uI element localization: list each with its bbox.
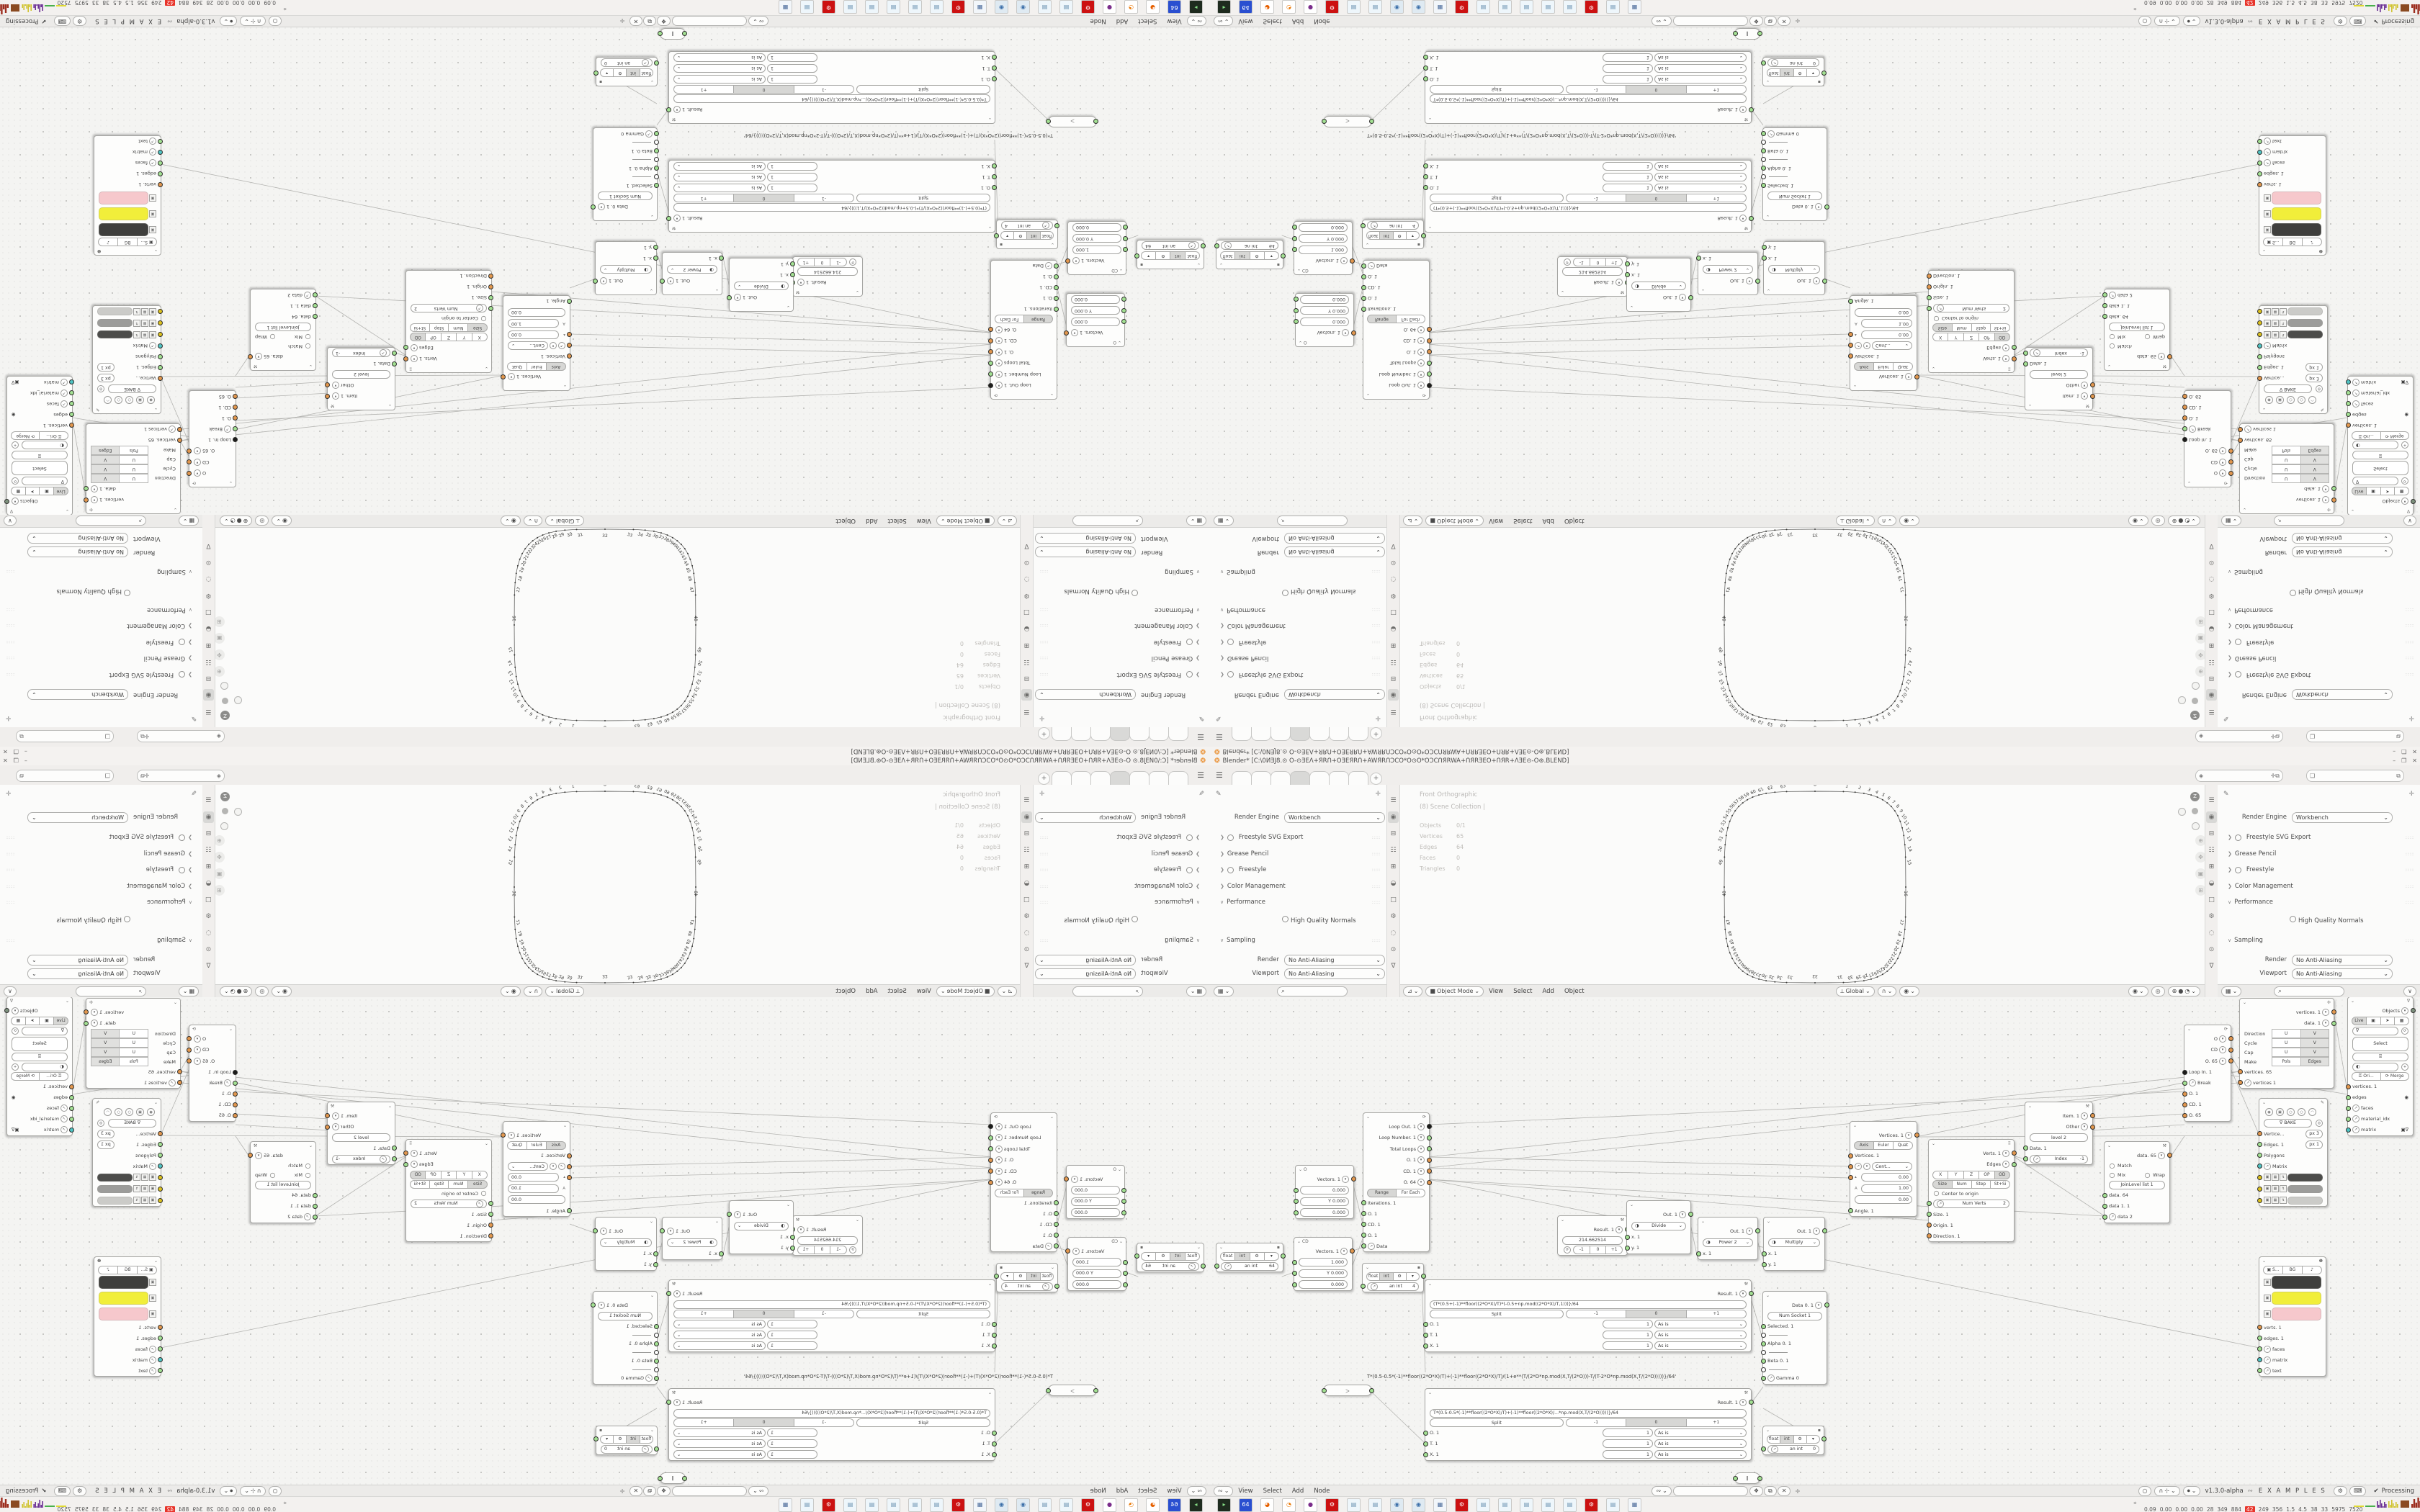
node-socket[interactable]: [84, 1021, 89, 1026]
segment-float[interactable]: float: [1185, 1252, 1200, 1261]
menu-select[interactable]: Select: [888, 988, 907, 995]
display-toggle-icon[interactable]: ○: [125, 396, 133, 404]
node-socket[interactable]: [2257, 182, 2262, 187]
pin-icon[interactable]: ✛: [1039, 714, 1045, 721]
prop-dropdown[interactable]: No Anti-Aliasing⌄: [1035, 968, 1136, 979]
segment-range[interactable]: Range: [1367, 1189, 1397, 1197]
checkbox[interactable]: [1227, 834, 1234, 841]
socket-menu-icon[interactable]: ▾: [1679, 1211, 1686, 1218]
disclosure-triangle[interactable]: ❯: [1196, 851, 1200, 857]
center-mode-dropdown[interactable]: Cent...⌄: [1872, 1162, 1912, 1171]
input-value-field[interactable]: ↗an int0: [1767, 1445, 1819, 1454]
collapse-icon[interactable]: ⌄: [154, 407, 158, 412]
node-socket[interactable]: [2257, 139, 2262, 144]
node-header[interactable]: ⌄ CD: [1294, 1238, 1352, 1246]
input-value-field[interactable]: ↗an int0: [601, 59, 653, 68]
color-option-icon[interactable]: ▣: [2264, 1185, 2271, 1192]
number-field[interactable]: 0.000: [1071, 295, 1120, 304]
update-all-button[interactable]: ⚙: [73, 16, 86, 26]
node-number-4[interactable]: ⌄▪floatint⚙▾↗an int4: [1362, 220, 1424, 249]
transform-mode-dropdown[interactable]: As is⌄: [673, 162, 766, 171]
record-icon[interactable]: ◎: [2316, 1120, 2323, 1127]
cell-v[interactable]: V: [91, 464, 120, 474]
wrap-+1[interactable]: +1: [673, 1310, 733, 1318]
socket-menu-icon[interactable]: ▾: [995, 1156, 1003, 1164]
display-toggle-icon[interactable]: ○: [2287, 1108, 2295, 1116]
collapse-icon[interactable]: ⌄ CD: [1111, 268, 1123, 273]
checkbox[interactable]: [2235, 867, 2241, 873]
new-workspace-tab-button[interactable]: +: [1038, 773, 1050, 785]
step-+1[interactable]: +1: [797, 1246, 814, 1254]
color-option-icon[interactable]: ▣: [2264, 194, 2271, 202]
node-field[interactable]: ◐: [22, 441, 68, 450]
socket-menu-icon[interactable]: ▾: [1739, 215, 1747, 222]
wifi-arrow-icon[interactable]: ↗: [380, 350, 387, 357]
segment-od[interactable]: OD: [410, 333, 425, 342]
disclosure-triangle[interactable]: ∨: [1220, 899, 1224, 905]
collapse-icon[interactable]: ⌄: [650, 1293, 654, 1298]
node-header[interactable]: ⌄: [503, 382, 570, 390]
socket-menu-icon[interactable]: ▾: [2219, 1035, 2226, 1043]
menu-view[interactable]: View: [1489, 518, 1503, 525]
prop-dropdown[interactable]: No Anti-Aliasing⌄: [1035, 534, 1136, 544]
node-socket[interactable]: [187, 471, 192, 476]
panel-label[interactable]: Freestyle: [2246, 866, 2274, 873]
workspace-tab[interactable]: [1348, 771, 1368, 786]
split-button[interactable]: Split: [856, 1310, 990, 1318]
node-field[interactable]: 214.662514: [1562, 1236, 1623, 1245]
socket-menu-icon[interactable]: ▾: [600, 1228, 607, 1235]
segment-quat[interactable]: Quat: [1894, 362, 1913, 371]
number-field[interactable]: 0.000: [1071, 1208, 1120, 1217]
tree-select-button[interactable]: ∾⌄: [748, 16, 768, 26]
collapse-button[interactable]: ∨: [4, 516, 17, 526]
collapse-icon[interactable]: ⌄: [856, 289, 859, 294]
node-socket[interactable]: [2257, 1187, 2262, 1192]
segment-float[interactable]: float: [1220, 1252, 1235, 1261]
node-socket[interactable]: [2090, 1113, 2095, 1118]
cell-pols[interactable]: Pols: [120, 1057, 149, 1066]
search-input[interactable]: ⌕: [1072, 986, 1143, 996]
overlay-group[interactable]: ⏺⌄: [2183, 16, 2201, 26]
node-header[interactable]: ⌄⚒: [251, 362, 315, 370]
viewport-3d[interactable]: Front Orthographic (8) Scene Collection …: [1399, 515, 2205, 727]
workspace-tab[interactable]: [1232, 771, 1252, 786]
collapse-icon[interactable]: ⌄: [66, 508, 69, 513]
disclosure-triangle[interactable]: ∨: [2228, 937, 2231, 943]
display-toggle-icon[interactable]: ◠: [104, 1108, 112, 1116]
menu-select[interactable]: Select: [1138, 17, 1157, 24]
segment-foreach[interactable]: For Each: [995, 1189, 1023, 1197]
color-option-icon[interactable]: ▣: [2264, 1197, 2271, 1204]
wifi-arrow-icon[interactable]: ↗: [1368, 1243, 1375, 1250]
node-socket[interactable]: [2346, 1128, 2351, 1133]
wifi-arrow-icon[interactable]: ↗: [2264, 343, 2271, 350]
row-right-icon[interactable]: ◉: [2404, 1094, 2408, 1100]
node-header[interactable]: ⌄⚒: [793, 288, 862, 296]
node-loop-out[interactable]: ⌄⟳O▾CD▾O. 65▾Loop In. 1↗BreakO. 1CD. 1O.…: [189, 1025, 236, 1122]
node-header[interactable]: ⌄▪: [1137, 261, 1204, 269]
menu-add[interactable]: Add: [1292, 1488, 1304, 1495]
viewport-tool-0[interactable]: ⊕: [214, 666, 225, 677]
node-socket[interactable]: [1361, 1200, 1366, 1205]
segment-live[interactable]: Live: [2352, 1017, 2367, 1025]
node-socket[interactable]: [1294, 297, 1299, 302]
disclosure-triangle[interactable]: ❯: [2228, 623, 2232, 629]
properties-tab-7[interactable]: ⚙: [1021, 590, 1032, 601]
gizmo-minus-z[interactable]: [2192, 822, 2200, 830]
segment-[interactable]: ▾: [1407, 1272, 1420, 1281]
number-field[interactable]: Y 0.000: [1071, 306, 1120, 315]
properties-tab-3[interactable]: ☷: [2206, 845, 2217, 856]
checkbox-row[interactable]: Wrap: [255, 1172, 276, 1179]
node-viewer-draw[interactable]: ⌄✎◉▣○○◠∇ BAKE◎Vertice...px 3Edges. 1px 1…: [2259, 305, 2328, 414]
socket-menu-icon[interactable]: ▾: [1340, 257, 1348, 264]
taskbar-app-icon-2[interactable]: ◕: [1146, 0, 1160, 14]
panel-label[interactable]: Grease Pencil: [2235, 850, 2277, 858]
wifi-arrow-icon[interactable]: ↗: [2264, 160, 2271, 167]
segment-[interactable]: ⚙: [1794, 69, 1807, 78]
number-field[interactable]: 0.00: [1855, 1195, 1912, 1204]
wifi-arrow-icon[interactable]: ↗: [2352, 1104, 2359, 1112]
number-field[interactable]: Y 0.000: [1072, 234, 1121, 243]
node-number-4[interactable]: ⌄▪floatint⚙▾↗an int4: [1362, 1263, 1424, 1292]
editor-type-button[interactable]: ∾⌄: [1187, 16, 1206, 26]
node-formula-1[interactable]: ⌄⚒Result. 1▾(T*(0.5+(-1)**floor((2*O*X)/…: [1425, 1279, 1752, 1352]
segment-euler[interactable]: Euler: [526, 1141, 546, 1150]
node-socket[interactable]: [1135, 253, 1140, 258]
menu-select[interactable]: Select: [1513, 518, 1532, 525]
properties-tab-10[interactable]: ∇: [2206, 540, 2217, 552]
prop-dropdown[interactable]: No Anti-Aliasing⌄: [1035, 955, 1136, 966]
segment-[interactable]: ▾: [1265, 1252, 1279, 1261]
operation-dropdown[interactable]: ◑Divide⌄: [1631, 1222, 1686, 1230]
segment-float[interactable]: float: [1767, 1435, 1780, 1444]
close-button[interactable]: ✕: [3, 748, 8, 755]
node-field[interactable]: JoinLevel list 1: [255, 1181, 311, 1189]
node-socket[interactable]: [1821, 71, 1827, 76]
sverchok-node-editor[interactable]: ⌄▪floatint⚙▾↗an int64⌄ OVectors. 1▾0.000…: [1210, 997, 2420, 1485]
depth-value[interactable]: 1: [1603, 1450, 1653, 1459]
taskbar-app-icon-10[interactable]: ▦: [1433, 0, 1447, 14]
scene-selector[interactable]: ◈✛⧉: [137, 770, 225, 782]
socket-menu-icon[interactable]: ▾: [2219, 1046, 2226, 1053]
collapse-icon[interactable]: ⌄: [309, 364, 313, 369]
collapse-icon[interactable]: ⌄: [1428, 1282, 1432, 1287]
workspace-tab[interactable]: [1090, 726, 1111, 741]
segment-z[interactable]: Z: [441, 333, 456, 342]
color-option-icon[interactable]: ▣: [149, 1279, 156, 1286]
checkbox[interactable]: [1186, 867, 1193, 873]
properties-tab-3[interactable]: ☷: [2206, 656, 2217, 667]
socket-menu-icon[interactable]: ▾: [2401, 498, 2408, 505]
wifi-arrow-icon[interactable]: ↗: [60, 1104, 68, 1112]
segment-float[interactable]: float: [1040, 232, 1054, 240]
overlays-toggle[interactable]: ◉⌄: [272, 516, 292, 526]
segment-y[interactable]: Y: [1948, 1171, 1963, 1179]
wifi-arrow-icon[interactable]: ↗: [642, 60, 649, 67]
wifi-arrow-icon[interactable]: ↗: [2189, 1079, 2196, 1086]
collapse-icon[interactable]: ⌄: [485, 1141, 488, 1146]
taskbar-app-icon-13[interactable]: ▤: [1498, 0, 1512, 14]
prop-dropdown[interactable]: Workbench⌄: [1035, 812, 1136, 823]
show-panel-button[interactable]: ⌨: [2349, 1486, 2367, 1496]
panel-label[interactable]: Performance: [147, 899, 186, 906]
node-math-divide[interactable]: ⌄Out. 1▾◑Divide⌄x. 1y. 1: [1626, 258, 1691, 312]
node-socket[interactable]: [326, 394, 331, 399]
gizmo-z-axis[interactable]: Z: [220, 792, 230, 801]
segment-[interactable]: ⚙: [1250, 252, 1265, 261]
node-socket[interactable]: [1696, 1251, 1701, 1256]
node-socket[interactable]: [1427, 338, 1432, 343]
properties-tab-4[interactable]: ⊞: [1388, 861, 1399, 873]
segment-[interactable]: ▦: [2395, 1017, 2409, 1025]
scene-selector[interactable]: ◈✛⧉: [137, 730, 225, 742]
workspace-tab[interactable]: [1168, 726, 1188, 741]
wifi-arrow-icon[interactable]: ↗: [1371, 222, 1378, 230]
update-all-button[interactable]: ⚙: [2334, 16, 2347, 26]
node-uv-connection[interactable]: ⌄✢vertices. 1▾data. 1▾DirectionUVCycleUV…: [2239, 423, 2334, 514]
collapse-icon[interactable]: ⌄: [1767, 288, 1770, 293]
collapse-icon[interactable]: ⌄: [563, 384, 567, 389]
node-field[interactable]: ∇: [22, 1027, 68, 1035]
node-socket[interactable]: [1214, 243, 1219, 248]
panel-label[interactable]: Freestyle SVG Export: [2246, 671, 2311, 678]
color-swatch[interactable]: [99, 1292, 148, 1305]
display-toggle-icon[interactable]: ▣: [2276, 396, 2284, 404]
select-button[interactable]: Select: [2352, 1037, 2408, 1051]
menu-node[interactable]: Node: [1090, 1488, 1106, 1495]
node-formula-2[interactable]: ⌄⚒Result. 1▾T*(0.5-0.5*(-1)**floor((2*O*…: [1425, 52, 1752, 125]
node-socket[interactable]: [1822, 279, 1827, 284]
socket-menu-icon[interactable]: ▾: [1417, 359, 1425, 366]
socket-menu-icon[interactable]: ▾: [1739, 106, 1747, 113]
disclosure-triangle[interactable]: ❯: [2228, 672, 2232, 678]
segment-s[interactable]: ▣ S...: [2263, 1266, 2283, 1274]
taskbar-app-icon-12[interactable]: ▤: [930, 0, 944, 14]
snap-group[interactable]: ∩⊹⌄: [240, 1486, 265, 1496]
row-right-icon[interactable]: ◉: [2404, 412, 2408, 418]
properties-tab-9[interactable]: ⊙: [1388, 557, 1399, 568]
hamburger-menu-icon[interactable]: ☰: [1197, 770, 1204, 780]
collapse-icon[interactable]: ⌄: [154, 248, 158, 253]
node-socket[interactable]: [1749, 216, 1754, 221]
collapse-icon[interactable]: ⌄: [2262, 248, 2266, 253]
segment-[interactable]: ▾: [1265, 252, 1279, 261]
wifi-arrow-icon[interactable]: ↗: [1042, 222, 1049, 230]
search-input[interactable]: ⌕: [2274, 986, 2344, 996]
socket-menu-icon[interactable]: ▾: [1072, 1248, 1080, 1255]
close-button[interactable]: ✕: [2412, 748, 2417, 755]
collapse-icon[interactable]: ⌄: [1766, 1293, 1770, 1298]
depth-value[interactable]: 1: [767, 162, 817, 171]
depth-value[interactable]: 1: [767, 1439, 817, 1448]
menu-arrow-icon[interactable]: ▾: [550, 1163, 557, 1170]
taskbar-app-icon-4[interactable]: ●: [1103, 0, 1116, 14]
collapse-icon[interactable]: ⌄: [2107, 1143, 2111, 1148]
shading-xray-toggle[interactable]: ◎: [2151, 986, 2165, 996]
node-socket[interactable]: [2257, 365, 2262, 370]
socket-menu-icon[interactable]: ▾: [995, 348, 1003, 356]
number-field[interactable]: 0.00: [508, 1195, 565, 1204]
number-field[interactable]: 0.000: [1300, 318, 1349, 326]
color-swatch[interactable]: [99, 207, 148, 220]
disclosure-triangle[interactable]: ❯: [1220, 834, 1224, 840]
node-socket[interactable]: [989, 1180, 994, 1185]
node-header[interactable]: ⌄⚒: [669, 1389, 995, 1397]
pin-icon[interactable]: ✛: [2408, 714, 2414, 721]
socket-menu-icon[interactable]: ▾: [12, 1007, 19, 1014]
wifi-arrow-icon[interactable]: ↗: [2264, 1163, 2271, 1170]
menu-arrow-icon[interactable]: ▾: [550, 342, 557, 349]
node-header[interactable]: ⌄: [663, 287, 722, 294]
wrap-+1[interactable]: +1: [673, 85, 733, 94]
menu-object[interactable]: Object: [835, 518, 856, 525]
node-socket[interactable]: [1361, 296, 1366, 301]
segment-[interactable]: ⚙: [1794, 1435, 1807, 1444]
checkbox-row[interactable]: Mix: [295, 1172, 311, 1179]
checkbox[interactable]: [2235, 672, 2241, 678]
node-socket[interactable]: [1761, 1341, 1766, 1346]
step-+1[interactable]: +1: [1606, 258, 1623, 266]
collapse-icon[interactable]: ⌄: [1366, 392, 1370, 397]
properties-tab-7[interactable]: ⚙: [2206, 590, 2217, 601]
socket-menu-icon[interactable]: ▾: [194, 1058, 201, 1065]
taskbar-app-icon-10[interactable]: ▦: [1433, 1498, 1447, 1512]
wifi-arrow-icon[interactable]: ↗: [2352, 379, 2359, 386]
workspace-tab[interactable]: [1251, 771, 1271, 786]
depth-value[interactable]: 1: [1603, 173, 1653, 181]
node-socket[interactable]: [1427, 1158, 1432, 1163]
socket-menu-icon[interactable]: ▾: [2002, 355, 2009, 362]
disclosure-triangle[interactable]: ❯: [1196, 883, 1200, 889]
color-option-icon[interactable]: ▣: [149, 1310, 156, 1318]
node-formula-2[interactable]: ⌄⚒Result. 1▾T*(0.5-0.5*(-1)**floor((2*O*…: [668, 1388, 995, 1461]
step--1[interactable]: -1: [830, 258, 847, 266]
menu-select[interactable]: Select: [1263, 17, 1282, 24]
node-number-0[interactable]: ⌄▪floatint⚙▾↗an int0: [1762, 57, 1824, 86]
node-socket[interactable]: [1361, 1233, 1366, 1238]
node-socket[interactable]: [2182, 1092, 2187, 1097]
prop-dropdown[interactable]: No Anti-Aliasing⌄: [2292, 534, 2393, 544]
node-socket[interactable]: [1761, 60, 1766, 66]
color-swatch[interactable]: [2287, 1185, 2323, 1193]
editor-type-button[interactable]: ▦⌄: [2221, 986, 2241, 996]
node-header[interactable]: ⌄⚒: [251, 1142, 315, 1150]
socket-menu-icon[interactable]: ▾: [2401, 1007, 2408, 1014]
properties-tab-1[interactable]: ◉: [1388, 811, 1399, 823]
depth-value[interactable]: 1: [767, 1320, 817, 1328]
cell-u[interactable]: U: [120, 1038, 149, 1048]
node-socket[interactable]: [660, 1228, 665, 1233]
number-field[interactable]: 0.000: [1300, 1208, 1349, 1217]
node-socket[interactable]: [1294, 319, 1299, 324]
node-header[interactable]: ⌄⟳: [189, 479, 236, 487]
socket-menu-icon[interactable]: ▾: [332, 392, 339, 400]
node-header[interactable]: ⌄: [730, 303, 793, 311]
view-layer-selector[interactable]: ❏⧉: [16, 770, 114, 782]
node-mesh-viewer[interactable]: ⌄∇Objects▾Live▣➤▦∇⟳Select⌸◐+⚿ Ori...⟳ Me…: [2347, 377, 2414, 516]
copy-tree-button[interactable]: ⧉: [1764, 16, 1777, 26]
node-socket[interactable]: [2102, 1204, 2107, 1209]
transform-mode-dropdown[interactable]: As is⌄: [673, 1341, 766, 1350]
display-toggle-icon[interactable]: ◉: [147, 1108, 155, 1116]
color-option-icon[interactable]: ▦: [141, 320, 148, 327]
operation-dropdown[interactable]: ◑Divide⌄: [1631, 282, 1686, 291]
disclosure-triangle[interactable]: ❯: [188, 672, 192, 678]
socket-menu-icon[interactable]: ▾: [194, 459, 201, 466]
wifi-arrow-icon[interactable]: ↗: [2264, 1346, 2271, 1353]
node-socket[interactable]: [1361, 1222, 1366, 1227]
depth-value[interactable]: 1: [1603, 162, 1653, 171]
wifi-arrow-icon[interactable]: ↗: [149, 1356, 156, 1364]
socket-menu-icon[interactable]: ▾: [508, 1132, 515, 1139]
segment-live[interactable]: Live: [2352, 487, 2367, 495]
node-socket[interactable]: [1625, 1246, 1630, 1251]
fake-user-button[interactable]: ❖: [1749, 1486, 1763, 1496]
color-option-icon[interactable]: ▣: [2264, 308, 2271, 315]
properties-tab-8[interactable]: ◌: [2206, 927, 2217, 939]
color-swatch[interactable]: [2287, 331, 2323, 339]
editor-type-button[interactable]: ▦⌄: [1214, 516, 1234, 526]
segment-num[interactable]: Num: [1953, 1180, 1972, 1189]
node-socket[interactable]: [727, 1212, 732, 1217]
node-socket[interactable]: [1361, 1243, 1366, 1248]
node-socket[interactable]: [2257, 1164, 2262, 1169]
color-option-icon[interactable]: ▣: [149, 210, 156, 217]
tree-select-button[interactable]: ∾⌄: [748, 1486, 768, 1496]
checkbox[interactable]: [270, 1172, 275, 1177]
node-socket[interactable]: [187, 459, 192, 464]
pin-icon[interactable]: ✛: [620, 18, 625, 24]
input-value-field[interactable]: ↗an int64: [1221, 242, 1278, 251]
copy-tree-button[interactable]: ⧉: [1764, 1486, 1777, 1496]
viewport-tool-2[interactable]: ▣: [214, 868, 225, 879]
color-option-icon[interactable]: ▣: [2264, 320, 2271, 327]
node-field[interactable]: JoinLevel list 1: [255, 323, 311, 332]
node-header[interactable]: ⌄⚒: [1558, 1216, 1627, 1224]
node-socket[interactable]: [1292, 225, 1297, 230]
wifi-arrow-icon[interactable]: ↗: [2244, 1079, 2251, 1086]
node-socket[interactable]: [1761, 1350, 1766, 1355]
wifi-arrow-icon[interactable]: ↗: [2264, 149, 2271, 156]
checkbox-row[interactable]: Wrap: [2144, 334, 2165, 341]
collapse-icon[interactable]: ⌄: [1630, 305, 1633, 310]
node-socket[interactable]: [989, 1135, 994, 1140]
node-socket[interactable]: [2228, 1036, 2233, 1041]
number-field[interactable]: 1.00: [1861, 319, 1912, 328]
node-header[interactable]: ⌄⟳: [1363, 1113, 1429, 1121]
wrap-0[interactable]: 0: [1626, 85, 1686, 94]
node-socket[interactable]: [187, 1048, 192, 1053]
node-field[interactable]: ∇: [2352, 477, 2398, 486]
panel-label[interactable]: Freestyle: [146, 639, 174, 646]
shading-xray-toggle[interactable]: ◎: [2151, 516, 2165, 526]
value-pill[interactable]: px 1: [97, 1140, 115, 1149]
node-header[interactable]: ⌄⟳: [1363, 391, 1429, 399]
split-button[interactable]: Split: [1430, 85, 1564, 94]
transform-mode-dropdown[interactable]: As is⌄: [1654, 1331, 1747, 1339]
maximize-button[interactable]: ❐: [2401, 757, 2406, 764]
cell-edges[interactable]: Edges: [91, 1057, 120, 1066]
socket-menu-icon[interactable]: ▾: [1615, 279, 1623, 286]
properties-tab-4[interactable]: ⊞: [1388, 639, 1399, 651]
node-socket[interactable]: [501, 374, 506, 379]
properties-tab-6[interactable]: □: [2206, 894, 2217, 906]
properties-tab-9[interactable]: ⊙: [1021, 557, 1032, 568]
node-socket[interactable]: [1757, 1476, 1762, 1481]
collapsed-node[interactable]: ＞: [1323, 116, 1372, 127]
